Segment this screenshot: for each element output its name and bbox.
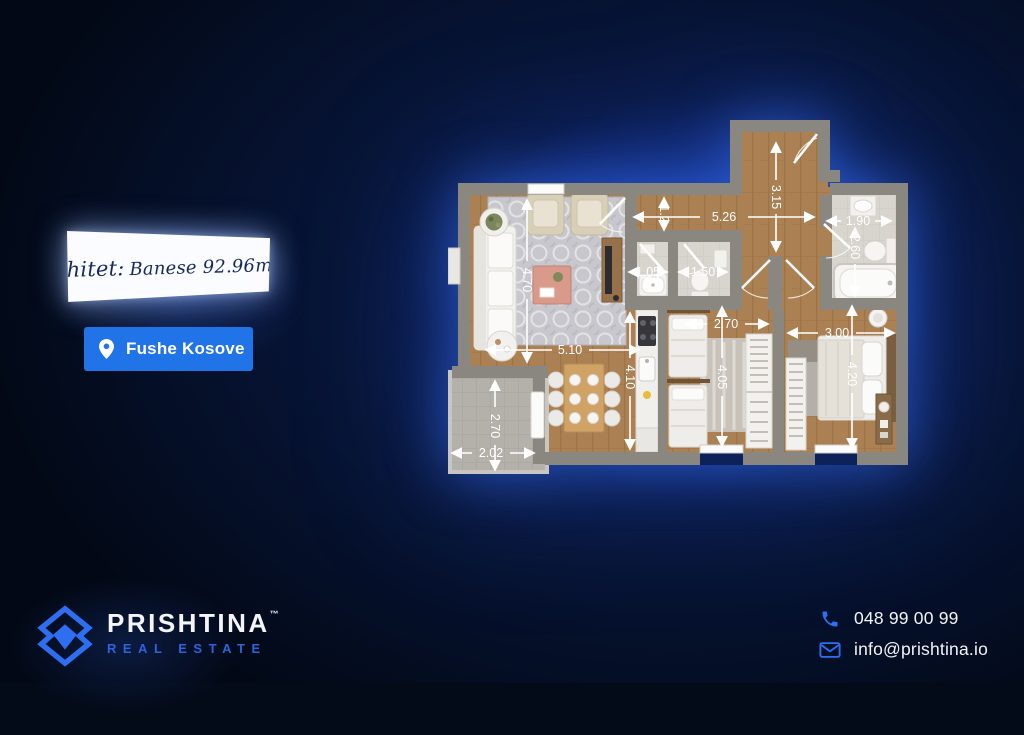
dining-furniture (548, 364, 620, 432)
floor-plan: 5.26 3.15 1.2 1.05 1.50 (448, 108, 920, 480)
svg-text:3.00: 3.00 (825, 326, 849, 340)
banner-prefix: Shitet: (52, 256, 125, 282)
svg-text:1.2: 1.2 (657, 205, 671, 222)
brand-text: PRISHTINA™ REAL ESTATE (107, 604, 279, 656)
tv (605, 246, 612, 294)
svg-text:2.70: 2.70 (714, 317, 738, 331)
email-icon (818, 641, 842, 659)
phone-row[interactable]: 048 99 00 99 (818, 608, 988, 629)
toilet (864, 241, 886, 261)
email-address: info@prishtina.io (854, 639, 988, 660)
prishtina-gem-icon (36, 604, 94, 668)
email-row[interactable]: info@prishtina.io (818, 639, 988, 660)
location-pin-icon (99, 339, 114, 359)
brand-tagline: REAL ESTATE (107, 641, 279, 656)
floor-plan-svg: 5.26 3.15 1.2 1.05 1.50 (448, 108, 920, 480)
svg-text:4.10: 4.10 (623, 365, 637, 389)
banner-title: Banese 92.96m2 (130, 254, 285, 279)
location-label: Fushe Kosove (126, 339, 245, 359)
contact-info: 048 99 00 99 info@prishtina.io (818, 608, 988, 670)
svg-text:5.10: 5.10 (558, 343, 582, 357)
banner-shape: Shitet:Banese 92.96m2 (67, 231, 270, 302)
side-table (487, 331, 517, 361)
phone-icon (818, 609, 842, 629)
banner-text: Shitet:Banese 92.96m2 (52, 251, 285, 281)
brand-name: PRISHTINA™ (107, 610, 279, 636)
toilet-tank (886, 238, 896, 264)
listing-banner: Shitet:Banese 92.96m2 (67, 231, 270, 302)
bowl (643, 391, 651, 399)
trademark: ™ (270, 609, 279, 619)
fridge (636, 428, 658, 452)
balcony-door (531, 392, 544, 438)
phone-number: 048 99 00 99 (854, 608, 959, 629)
page-canvas: Shitet:Banese 92.96m2 Fushe Kosove (0, 0, 1024, 683)
svg-text:5.26: 5.26 (712, 210, 736, 224)
svg-text:1.05: 1.05 (636, 265, 660, 279)
wc2-sink (714, 250, 727, 268)
svg-text:4.70: 4.70 (520, 268, 534, 292)
chimney (448, 248, 460, 284)
svg-text:2.60: 2.60 (848, 235, 862, 259)
svg-text:4.05: 4.05 (715, 365, 729, 389)
svg-text:2.02: 2.02 (479, 446, 503, 460)
svg-text:1.50: 1.50 (691, 265, 715, 279)
terrace-door-1 (700, 445, 743, 453)
kitchen-furniture (636, 310, 658, 452)
terrace-door-2 (815, 445, 857, 453)
coffee-table (533, 266, 571, 304)
window (528, 184, 564, 194)
svg-text:3.15: 3.15 (769, 185, 783, 209)
location-button[interactable]: Fushe Kosove (84, 327, 253, 371)
svg-text:2.70: 2.70 (488, 414, 502, 438)
brand-logo: PRISHTINA™ REAL ESTATE (36, 604, 279, 668)
svg-text:1.90: 1.90 (846, 214, 870, 228)
wardrobe1 (746, 334, 772, 448)
svg-text:4.20: 4.20 (845, 362, 859, 386)
